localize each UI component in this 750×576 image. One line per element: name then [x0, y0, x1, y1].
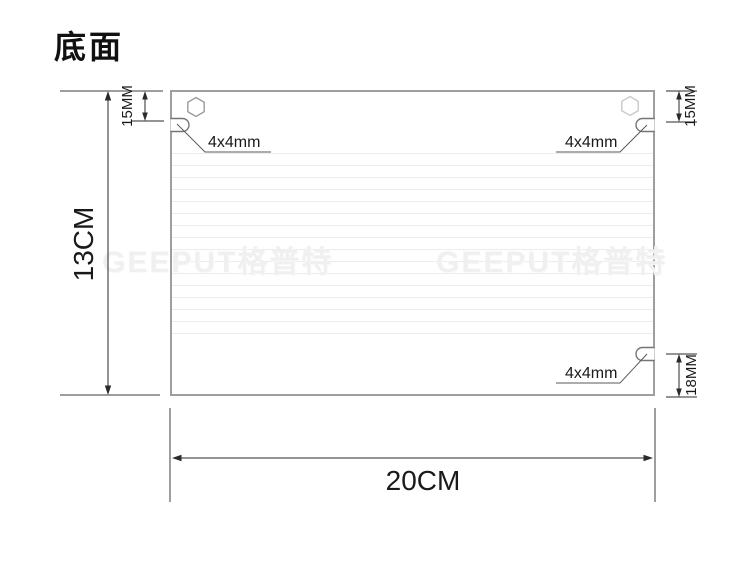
slot-label-bottom-right: 4x4mm [565, 365, 617, 383]
arrowhead-down [142, 113, 148, 122]
dimension-15mm-left-lines [132, 91, 164, 121]
hex-screw-icon-top-left [188, 98, 204, 117]
dimension-label-18mm: 18MM [683, 348, 699, 402]
hex-screw-icon-top-right [622, 97, 638, 116]
dimension-label-15mm-right: 15MM [682, 79, 698, 133]
slot-top-left [171, 119, 190, 132]
arrowhead-left [172, 455, 182, 461]
arrowhead-up [142, 91, 148, 100]
dimension-label-20cm: 20CM [373, 466, 473, 496]
dimension-label-15mm-left: 15MM [119, 79, 135, 133]
arrowhead-down [105, 386, 111, 396]
dimension-label-13cm: 13CM [69, 199, 99, 289]
slot-bottom-right [636, 348, 654, 361]
arrowhead-right [644, 455, 654, 461]
product-dimension-diagram: 底面 GEEPUT格普特 GEEPUT格普特 [0, 0, 750, 576]
slot-label-top-right: 4x4mm [565, 134, 617, 152]
arrowhead-down [676, 389, 682, 398]
arrowhead-up [676, 354, 682, 363]
slot-top-right [636, 119, 654, 132]
slot-label-top-left: 4x4mm [208, 134, 260, 152]
arrowhead-up [105, 91, 111, 101]
